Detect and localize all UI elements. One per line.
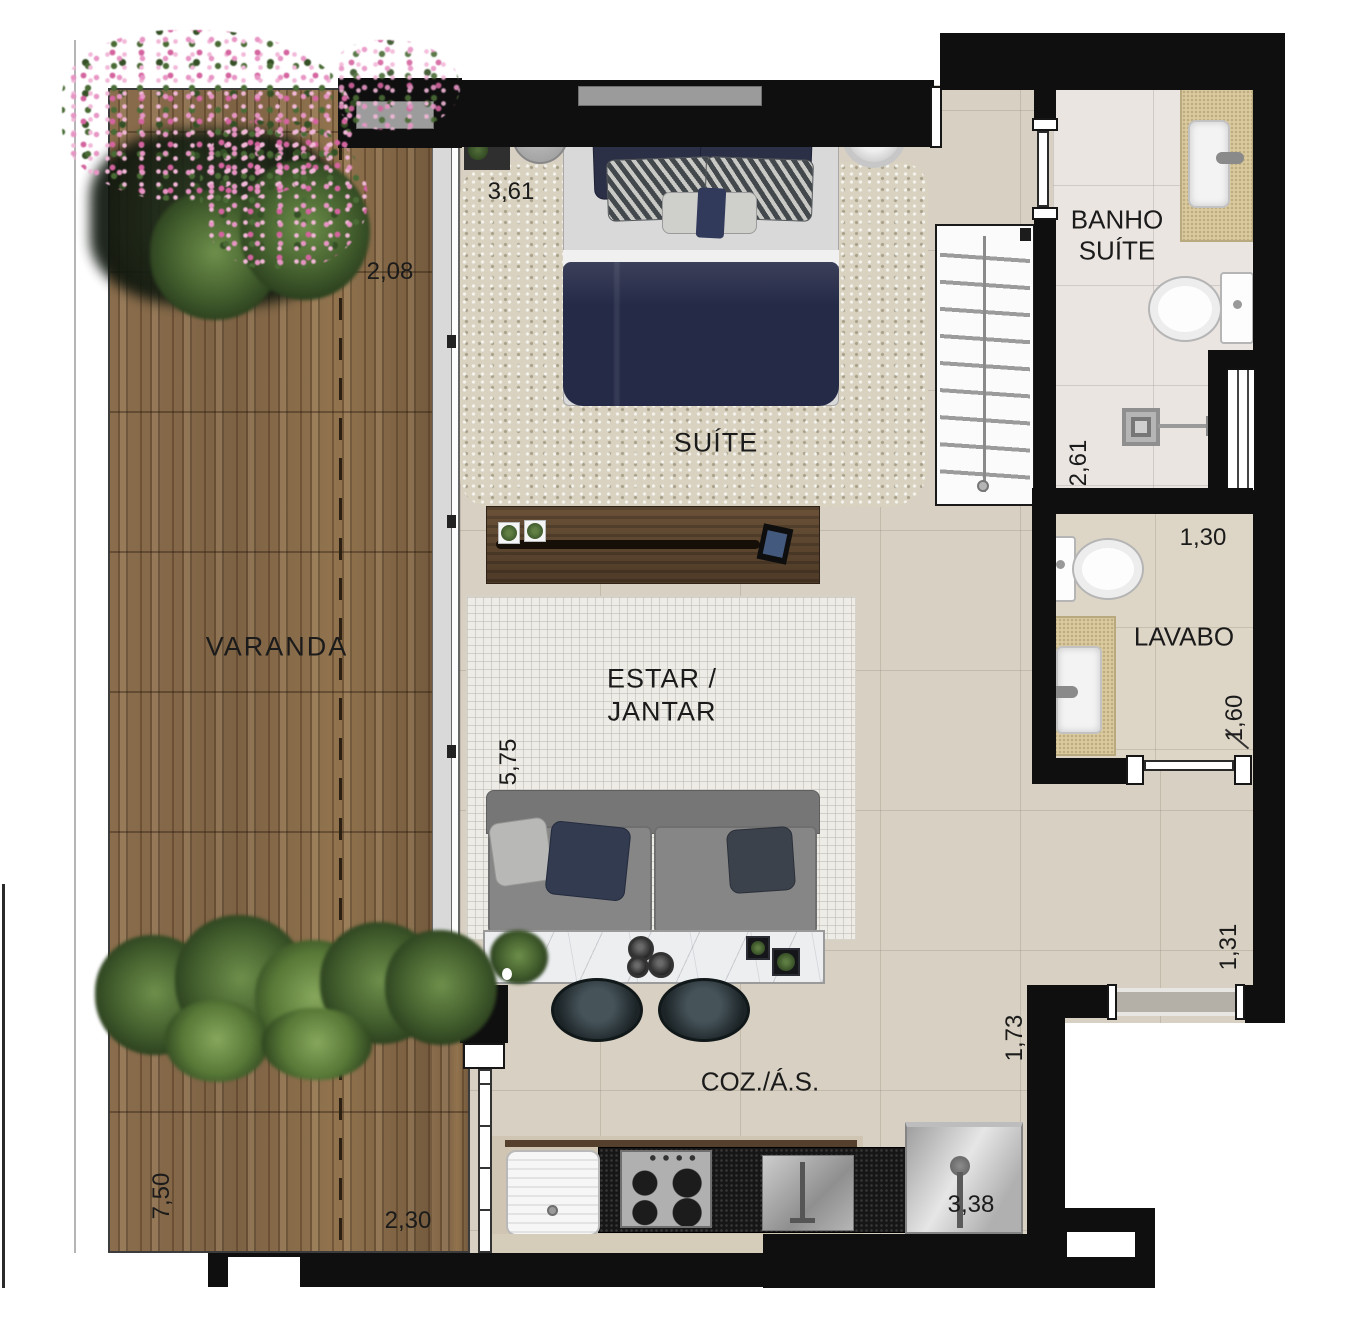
laundry-tub <box>506 1150 600 1236</box>
dim-coz-width: 3,38 <box>948 1191 995 1219</box>
wall-entry-right <box>1245 985 1285 1023</box>
wardrobe-knob <box>977 480 989 492</box>
sofa-pillow-dark <box>726 826 796 894</box>
kitchen-sink-faucet <box>800 1162 805 1222</box>
shower-drain <box>1122 408 1160 446</box>
wall-entry-left <box>1027 985 1115 1018</box>
lavabo-door-leaf <box>1144 760 1234 771</box>
bottom-wall-notch <box>228 1257 300 1287</box>
banho-faucet <box>1216 152 1244 164</box>
dim-suite-width: 3,61 <box>488 178 535 206</box>
room-label-lavabo: LAVABO <box>1134 622 1234 653</box>
dim-varanda-width: 2,08 <box>367 258 414 286</box>
wardrobe-corner-knob <box>1020 228 1031 241</box>
door-jamb <box>930 86 942 148</box>
banho-window <box>1226 368 1256 492</box>
outside-area <box>74 1253 208 1333</box>
room-label-suite: SUÍTE <box>674 428 759 459</box>
room-label-estar-line2: JANTAR <box>607 697 716 728</box>
bar-stool <box>658 978 750 1042</box>
varanda-plant <box>165 1000 269 1082</box>
bar-plant-pot <box>746 936 770 960</box>
varanda-plant <box>385 930 497 1045</box>
outside-area <box>1065 1023 1353 1208</box>
sofa-pillow-navy <box>544 820 631 902</box>
door-jamb <box>1032 207 1058 220</box>
wall-bottom-right <box>763 1234 1065 1288</box>
room-label-estar-line1: ESTAR / <box>607 664 717 695</box>
kitchen-sink-faucet-bar <box>790 1218 815 1223</box>
shaft-notch <box>1067 1232 1135 1257</box>
wall-top-right <box>940 33 1285 90</box>
wall-right-outer <box>1253 33 1285 1023</box>
dim-hall-width: 1,31 <box>1215 924 1243 971</box>
shower-arm <box>1158 424 1212 428</box>
laundry-tub-faucet <box>547 1205 558 1216</box>
room-label-coz: COZ./Á.S. <box>701 1067 819 1098</box>
sofa-pillow-light <box>488 816 554 887</box>
glass-door-handle <box>447 335 456 348</box>
dim-estar-depth: 5,75 <box>495 739 523 786</box>
kitchen-cabinet-strip <box>488 1234 763 1254</box>
bed-accent-pillow <box>696 187 727 238</box>
dim-banho-depth: 2,61 <box>1065 440 1093 487</box>
bar-plant-pot <box>772 948 800 976</box>
wall-bottom-mid <box>492 1253 763 1287</box>
sliding-glass-door-track <box>432 112 452 988</box>
banho-toilet-bowl <box>1148 276 1222 342</box>
wardrobe-rod <box>983 236 986 492</box>
dim-lavabo-width: 1,30 <box>1180 524 1227 552</box>
sideboard-plant-pot <box>498 522 520 544</box>
headboard <box>578 86 762 106</box>
door-jamb <box>463 1043 505 1069</box>
balcony-outer-line <box>74 40 76 1300</box>
wall-lavabo-bottom <box>1032 758 1134 784</box>
room-label-varanda: VARANDA <box>206 632 349 663</box>
banho-toilet-button <box>1233 300 1242 309</box>
door-jamb <box>1126 755 1144 785</box>
door-jamb <box>1107 984 1117 1020</box>
dim-varanda-inner: 2,30 <box>385 1207 432 1235</box>
lavabo-toilet-bowl <box>1072 538 1144 600</box>
wall-banho-left <box>1034 220 1056 510</box>
glass-door-handle <box>447 515 456 528</box>
banho-door-leaf <box>1037 131 1049 207</box>
neighbor-wall-line <box>2 884 5 1333</box>
banho-basin <box>1188 120 1230 208</box>
floor-plan: VARANDA SUÍTE BANHO SUÍTE LAVABO ESTAR /… <box>0 0 1353 1333</box>
kitchen-counter-wood-edge <box>505 1140 857 1147</box>
dim-coz-depth: 1,73 <box>1001 1015 1029 1062</box>
dim-lavabo-depth: 1,60 <box>1221 695 1249 742</box>
bar-bowl <box>627 956 649 978</box>
wall-banho-lavabo-divider <box>1032 488 1253 514</box>
bed-duvet <box>563 262 839 406</box>
stove <box>620 1150 712 1228</box>
service-door <box>478 1069 492 1253</box>
wall-lavabo-left <box>1032 488 1056 784</box>
bar-plant <box>490 930 548 984</box>
bougainvillea-flowers <box>330 40 460 130</box>
bar-bowl <box>648 952 674 978</box>
bar-flower <box>502 968 512 980</box>
sideboard-plant-pot <box>524 520 546 542</box>
varanda-plant <box>262 1008 372 1080</box>
entry-threshold <box>1115 988 1235 1016</box>
wall-banho-left-upper <box>1034 88 1056 118</box>
room-label-banho-line2: SUÍTE <box>1079 236 1156 267</box>
dim-varanda-length: 7,50 <box>148 1173 176 1220</box>
door-jamb <box>1235 984 1245 1020</box>
door-jamb <box>1234 755 1252 785</box>
room-label-banho-line1: BANHO <box>1071 205 1163 236</box>
glass-door-handle <box>447 745 456 758</box>
bar-stool <box>551 978 643 1042</box>
lavabo-toilet-button <box>1056 560 1065 569</box>
door-jamb <box>1032 118 1058 131</box>
